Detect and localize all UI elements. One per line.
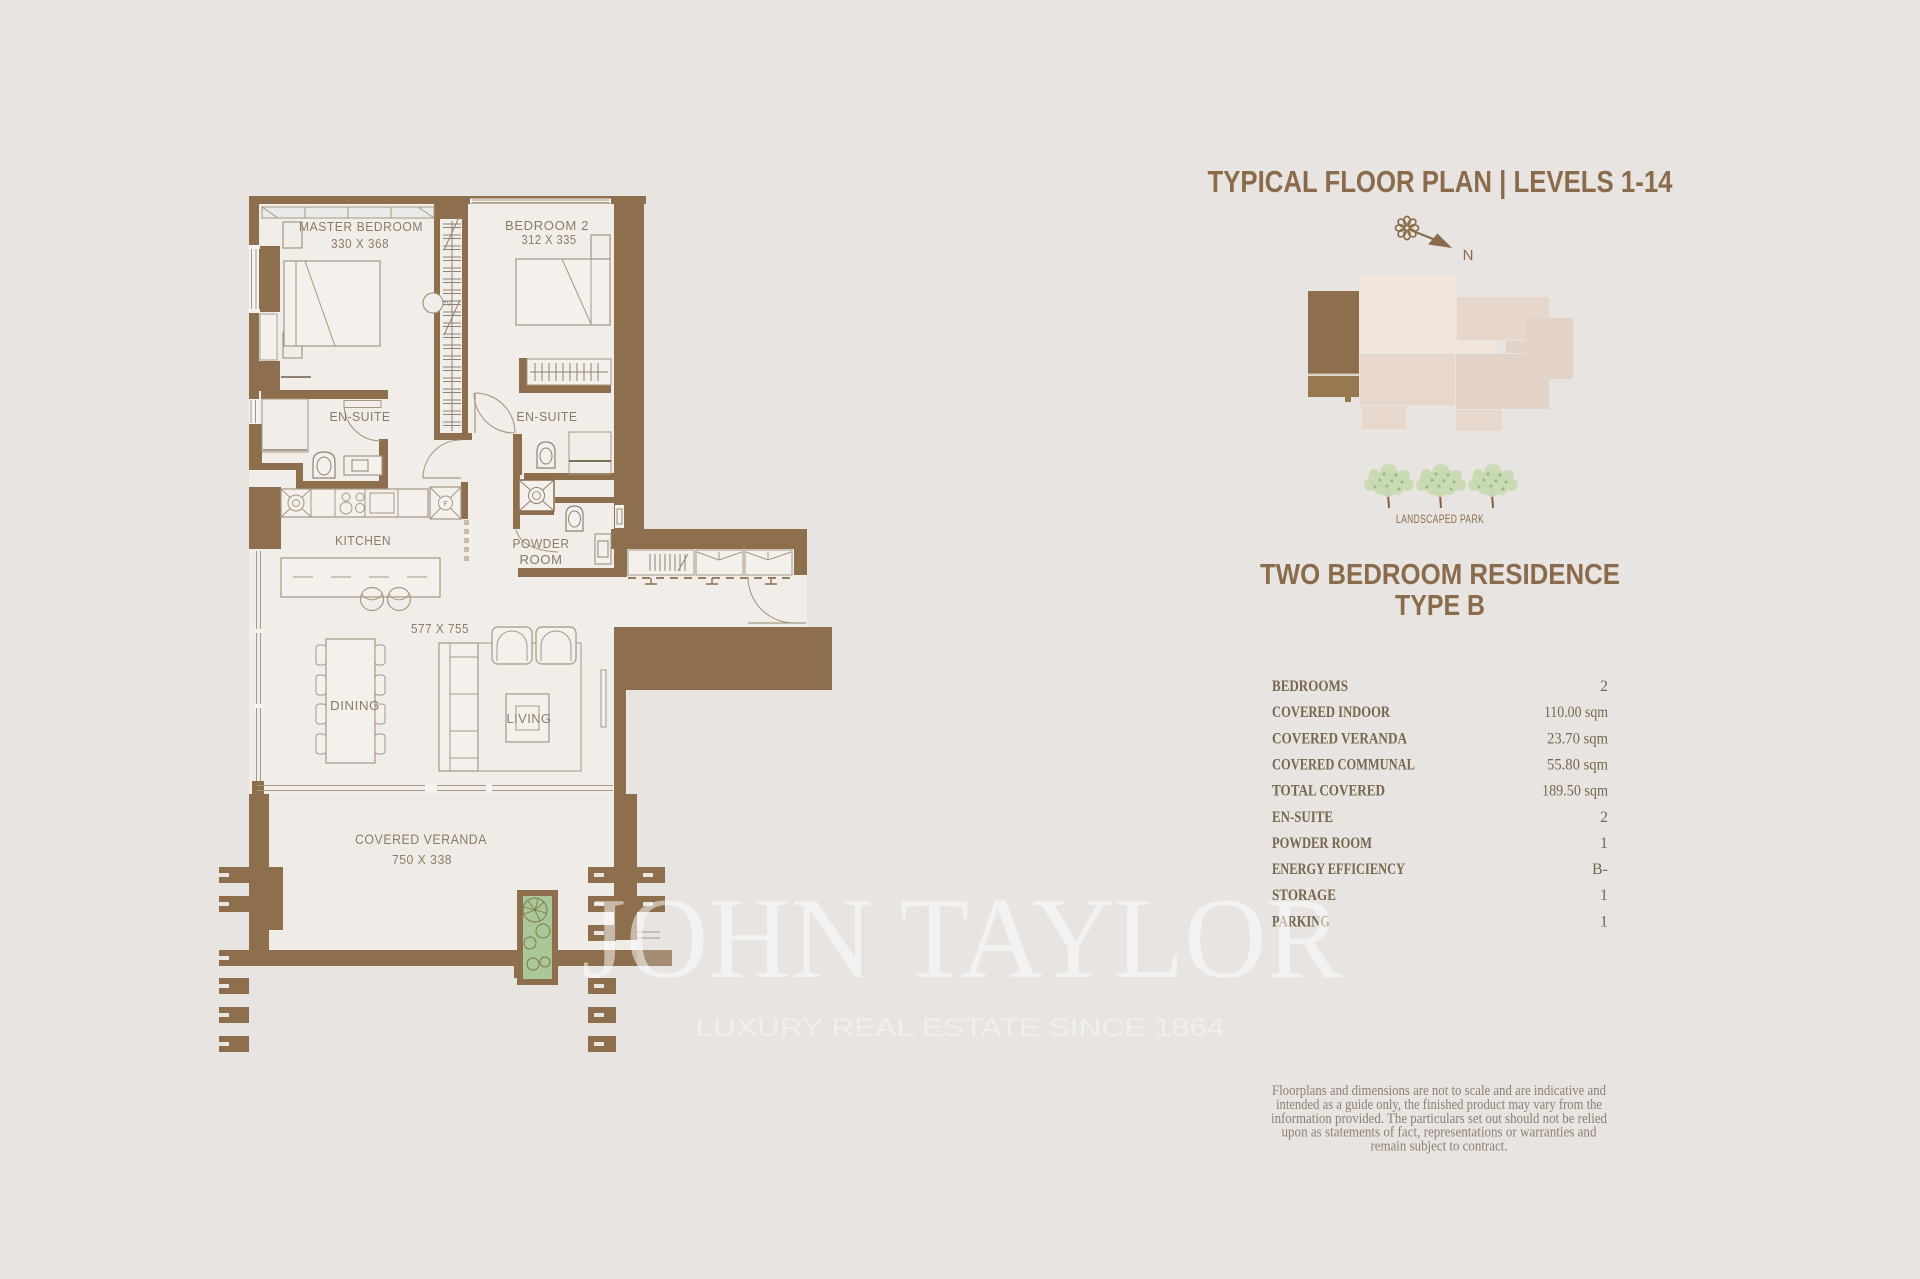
- svg-text:F: F: [443, 501, 447, 508]
- svg-text:COVERED VERANDA: COVERED VERANDA: [1272, 730, 1407, 747]
- svg-text:COVERED VERANDA: COVERED VERANDA: [355, 831, 487, 847]
- svg-text:LANDSCAPED PARK: LANDSCAPED PARK: [1396, 514, 1484, 526]
- svg-text:LUXURY REAL ESTATE SINCE 1864: LUXURY REAL ESTATE SINCE 1864: [696, 1014, 1225, 1042]
- svg-text:B-: B-: [1592, 861, 1608, 878]
- svg-text:MASTER BEDROOM: MASTER BEDROOM: [299, 219, 423, 234]
- svg-text:1: 1: [1600, 913, 1608, 930]
- svg-text:COVERED INDOOR: COVERED INDOOR: [1272, 704, 1390, 721]
- svg-text:POWDER ROOM: POWDER ROOM: [1272, 835, 1372, 852]
- svg-text:577 X 755: 577 X 755: [411, 622, 469, 636]
- svg-text:BEDROOMS: BEDROOMS: [1272, 678, 1348, 695]
- svg-text:110.00 sqm: 110.00 sqm: [1544, 704, 1608, 721]
- svg-text:TWO BEDROOM RESIDENCE: TWO BEDROOM RESIDENCE: [1260, 559, 1620, 591]
- svg-text:DINING: DINING: [330, 698, 380, 713]
- svg-text:EN-SUITE: EN-SUITE: [330, 409, 391, 424]
- svg-text:TOTAL COVERED: TOTAL COVERED: [1272, 783, 1385, 800]
- svg-text:EN-SUITE: EN-SUITE: [1272, 809, 1333, 826]
- svg-text:remain subject to contract.: remain subject to contract.: [1371, 1139, 1508, 1155]
- svg-text:BEDROOM 2: BEDROOM 2: [505, 218, 589, 233]
- svg-text:189.50 sqm: 189.50 sqm: [1542, 783, 1608, 800]
- svg-text:23.70 sqm: 23.70 sqm: [1547, 730, 1609, 747]
- svg-text:TYPICAL FLOOR PLAN | LEVELS 1-: TYPICAL FLOOR PLAN | LEVELS 1-14: [1208, 164, 1674, 199]
- svg-text:KITCHEN: KITCHEN: [335, 533, 391, 548]
- svg-text:2: 2: [1600, 678, 1608, 695]
- svg-text:ROOM: ROOM: [520, 552, 563, 567]
- svg-text:TYPE B: TYPE B: [1395, 590, 1485, 622]
- svg-text:1: 1: [1600, 887, 1608, 904]
- svg-text:N: N: [1463, 247, 1474, 264]
- svg-text:JOHN TAYLOR: JOHN TAYLOR: [582, 875, 1343, 1002]
- svg-text:55.80 sqm: 55.80 sqm: [1547, 756, 1609, 773]
- svg-text:COVERED COMMUNAL: COVERED COMMUNAL: [1272, 756, 1415, 773]
- svg-text:POWDER: POWDER: [513, 536, 570, 551]
- svg-text:312 X 335: 312 X 335: [522, 233, 577, 247]
- svg-text:1: 1: [1600, 835, 1608, 852]
- svg-text:EN-SUITE: EN-SUITE: [517, 409, 578, 424]
- svg-text:330 X 368: 330 X 368: [331, 237, 389, 251]
- svg-text:LIVING: LIVING: [507, 711, 552, 726]
- svg-text:2: 2: [1600, 809, 1608, 826]
- svg-text:750 X 338: 750 X 338: [392, 852, 452, 867]
